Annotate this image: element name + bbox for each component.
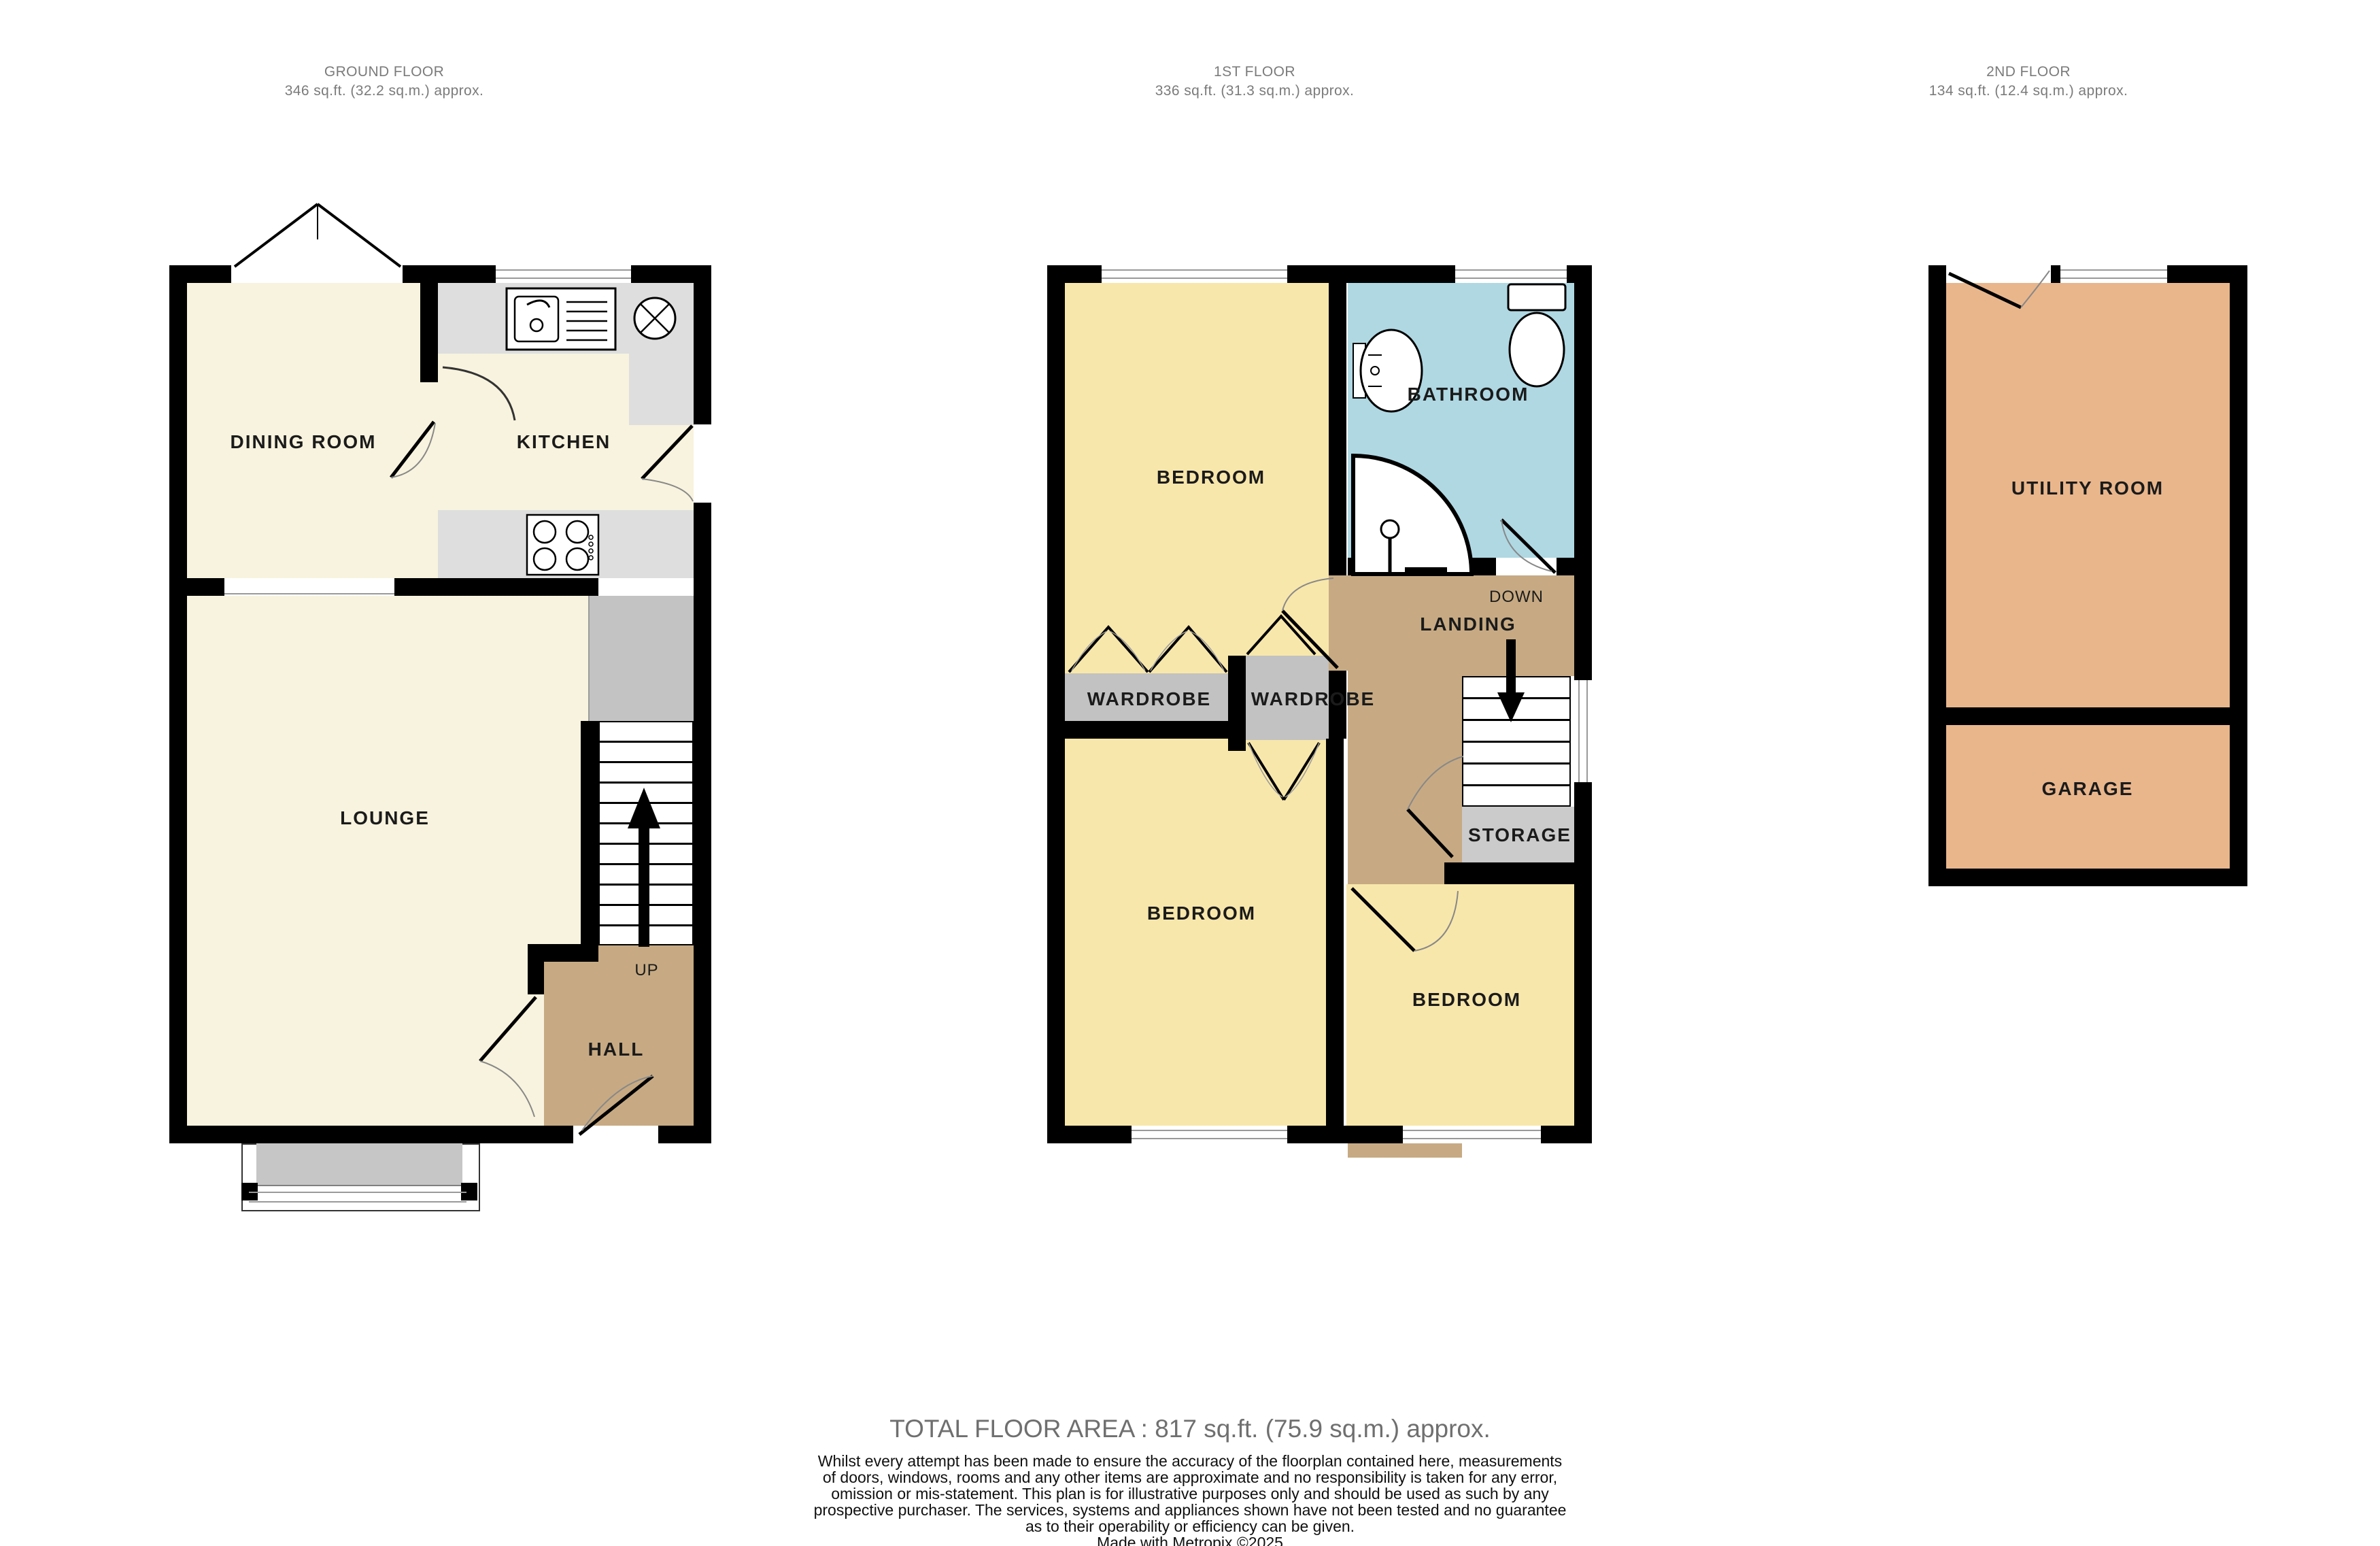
room-label-kitchen: KITCHEN (517, 431, 611, 453)
room-label-landing: LANDING (1420, 614, 1516, 635)
kitchen-side-door-opening (694, 424, 711, 503)
bay-window-sill-line (249, 1192, 466, 1193)
room-label-bedroom-1: BEDROOM (1157, 467, 1265, 488)
wall (169, 265, 187, 1143)
wall (1047, 265, 1065, 1143)
disclaimer-line: of doors, windows, rooms and any other i… (0, 1469, 2380, 1485)
room-label-lounge: LOUNGE (340, 807, 430, 829)
bay-window-sill-line (249, 1201, 466, 1203)
utility-door-opening (1946, 265, 2051, 283)
room-label-wardrobe-1: WARDROBE (1087, 688, 1211, 710)
threshold-line (224, 593, 394, 594)
room-bathroom (1348, 283, 1574, 558)
room-label-garage: GARAGE (2042, 778, 2134, 800)
first-floor-title: 1ST FLOOR (1051, 63, 1459, 82)
room-lounge (187, 596, 588, 1126)
room-bedroom-2 (1065, 739, 1329, 1126)
kitchen-counter-right (629, 283, 694, 425)
stairs-up-label: UP (634, 961, 658, 980)
opening-dining-kitchen (420, 382, 438, 578)
room-label-storage: STORAGE (1468, 824, 1571, 846)
room-label-bedroom-3: BEDROOM (1412, 989, 1521, 1011)
room-dining (187, 283, 420, 578)
wall (694, 265, 711, 1143)
wall (1946, 707, 2230, 725)
wall (581, 721, 598, 962)
ground-floor-area: 346 sq.ft. (32.2 sq.m.) approx. (180, 82, 588, 101)
room-label-bedroom-2: BEDROOM (1147, 903, 1256, 924)
wall (187, 578, 224, 596)
stairs-down-label: DOWN (1489, 588, 1544, 607)
second-floor-plan: UTILITY ROOM GARAGE (1928, 265, 2247, 886)
ground-floor-title: GROUND FLOOR (180, 63, 588, 82)
stairs-up (598, 721, 694, 945)
window (1403, 1126, 1541, 1143)
window (1132, 1126, 1287, 1143)
wall (1348, 558, 1496, 575)
french-door-opening (231, 265, 403, 283)
wall (1329, 265, 1346, 575)
stairwell-void (588, 596, 694, 721)
first-floor-header: 1ST FLOOR 336 sq.ft. (31.3 sq.m.) approx… (1051, 63, 1459, 101)
wall (1047, 721, 1228, 739)
disclaimer-line: Whilst every attempt has been made to en… (0, 1453, 2380, 1469)
first-floor-plan: BEDROOM BATHROOM DOWN LANDING WARDROBE W… (1047, 265, 1592, 1143)
window (1455, 265, 1567, 283)
disclaimer-line: as to their operability or efficiency ca… (0, 1518, 2380, 1534)
room-label-wardrobe-2: WARDROBE (1251, 688, 1375, 710)
wall (1326, 739, 1344, 1126)
wall (394, 578, 598, 596)
french-doors-icon (235, 204, 401, 267)
wall (1928, 265, 1946, 886)
floorplan-canvas: GROUND FLOOR 346 sq.ft. (32.2 sq.m.) app… (0, 0, 2380, 1546)
total-floor-area: TOTAL FLOOR AREA : 817 sq.ft. (75.9 sq.m… (0, 1415, 2380, 1443)
first-floor-area: 336 sq.ft. (31.3 sq.m.) approx. (1051, 82, 1459, 101)
window (1102, 265, 1287, 283)
room-label-hall: HALL (588, 1039, 645, 1060)
front-door-opening (573, 1126, 658, 1143)
window (2060, 265, 2167, 283)
room-label-utility: UTILITY ROOM (2011, 477, 2164, 499)
wall (528, 944, 544, 994)
window (1574, 680, 1592, 782)
wall (1557, 558, 1574, 575)
stairs-down (1462, 676, 1571, 807)
room-label-bathroom: BATHROOM (1408, 384, 1529, 405)
second-floor-header: 2ND FLOOR 134 sq.ft. (12.4 sq.m.) approx… (1824, 63, 2232, 101)
wall (420, 265, 438, 382)
bedroom1-door-opening (1329, 575, 1348, 671)
second-floor-area: 134 sq.ft. (12.4 sq.m.) approx. (1824, 82, 2232, 101)
second-floor-title: 2ND FLOOR (1824, 63, 2232, 82)
bay-window-glass (256, 1143, 462, 1186)
ground-floor-plan: DINING ROOM KITCHEN LOUNGE HALL UP (169, 265, 711, 1143)
disclaimer-line: prospective purchaser. The services, sys… (0, 1502, 2380, 1518)
wall (1228, 656, 1246, 751)
window (496, 265, 631, 283)
ground-floor-header: GROUND FLOOR 346 sq.ft. (32.2 sq.m.) app… (180, 63, 588, 101)
room-label-dining: DINING ROOM (231, 431, 377, 453)
kitchen-counter-bottom (438, 510, 694, 578)
disclaimer-line: omission or mis-statement. This plan is … (0, 1485, 2380, 1502)
wall (2230, 265, 2247, 886)
metropix-credit: Made with Metropix ©2025 (0, 1534, 2380, 1546)
footer: TOTAL FLOOR AREA : 817 sq.ft. (75.9 sq.m… (0, 1415, 2380, 1546)
wall (1444, 862, 1574, 884)
wall (1928, 869, 2247, 886)
